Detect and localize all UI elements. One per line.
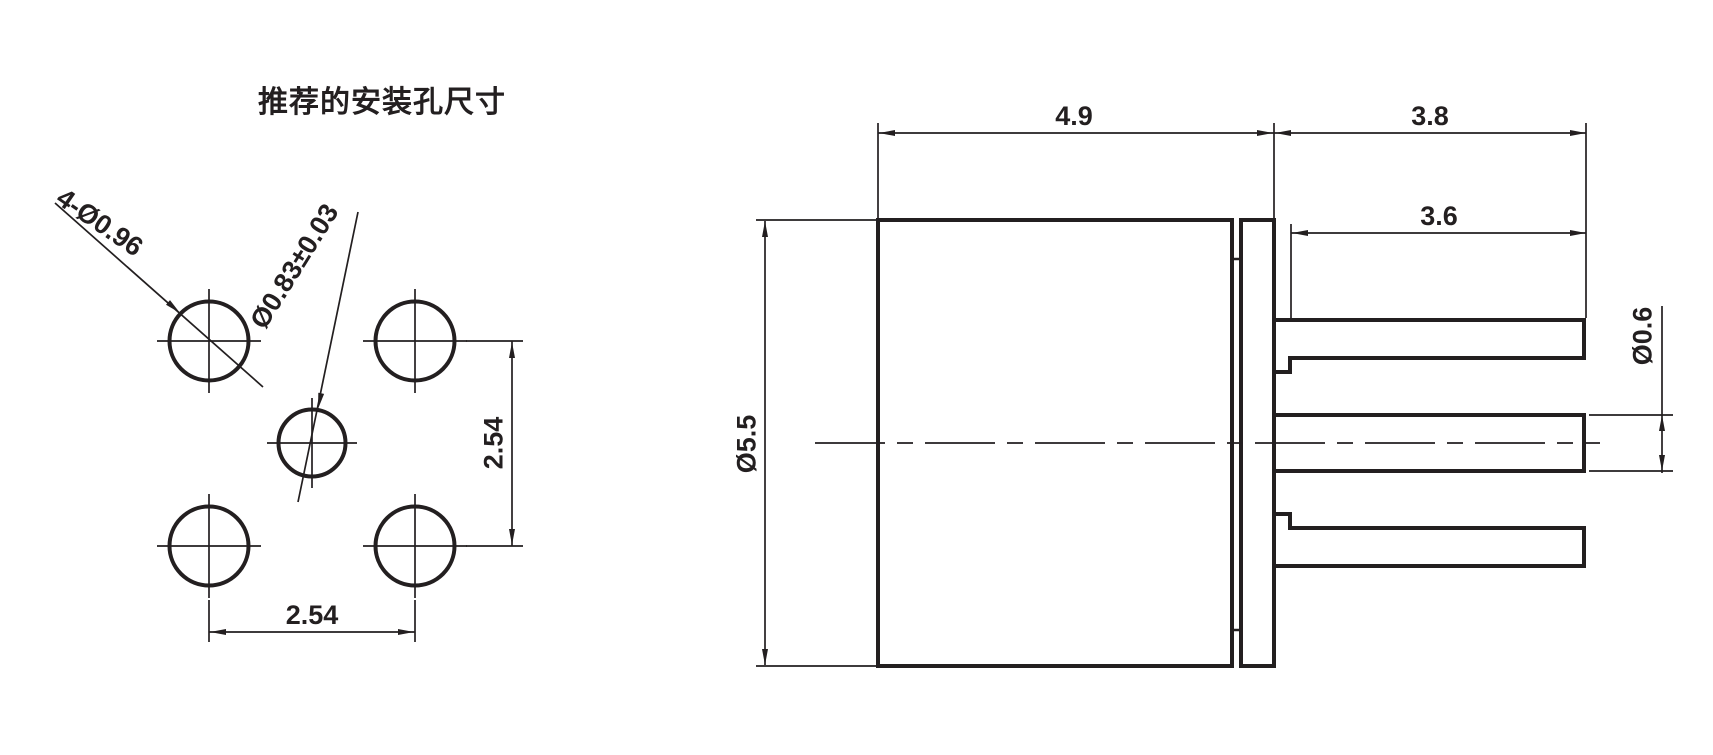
- technical-drawing: 推荐的安装孔尺寸: [0, 0, 1713, 755]
- center-hole-label: Ø0.83±0.03: [244, 199, 344, 334]
- pin-overall-length-label: 3.8: [1411, 101, 1449, 131]
- vertical-pitch-label: 2.54: [478, 417, 508, 470]
- hole-top-right: [363, 289, 467, 393]
- hole-bottom-right: [363, 494, 467, 598]
- corner-holes-label: 4-Ø0.96: [51, 182, 148, 262]
- hole-center: [267, 398, 357, 488]
- pin-top: [1274, 320, 1584, 372]
- body-diameter-label: Ø5.5: [731, 415, 761, 474]
- body-length-label: 4.9: [1055, 101, 1093, 131]
- hole-bottom-left: [157, 494, 261, 598]
- dim-vertical-pitch: 2.54: [466, 341, 523, 546]
- horizontal-pitch-label: 2.54: [286, 600, 339, 630]
- pin-diameter-label: Ø0.6: [1627, 307, 1657, 366]
- side-view: 4.9 3.8 3.6 Ø5.5: [731, 101, 1673, 666]
- view-title: 推荐的安装孔尺寸: [258, 86, 506, 119]
- dim-body-length: 4.9: [878, 101, 1274, 218]
- pin-bottom: [1274, 514, 1584, 566]
- dim-pin-diameter: Ø0.6: [1589, 306, 1673, 473]
- dim-horizontal-pitch: 2.54: [209, 600, 415, 642]
- dim-pin-exposed-length: 3.6: [1291, 201, 1586, 318]
- leader-arrowhead: [318, 393, 324, 409]
- hole-pattern-view: 推荐的安装孔尺寸: [51, 86, 523, 642]
- drawing-sheet: 推荐的安装孔尺寸: [0, 0, 1713, 755]
- pin-exposed-length-label: 3.6: [1420, 201, 1458, 231]
- leader-corner-holes: 4-Ø0.96: [51, 182, 263, 387]
